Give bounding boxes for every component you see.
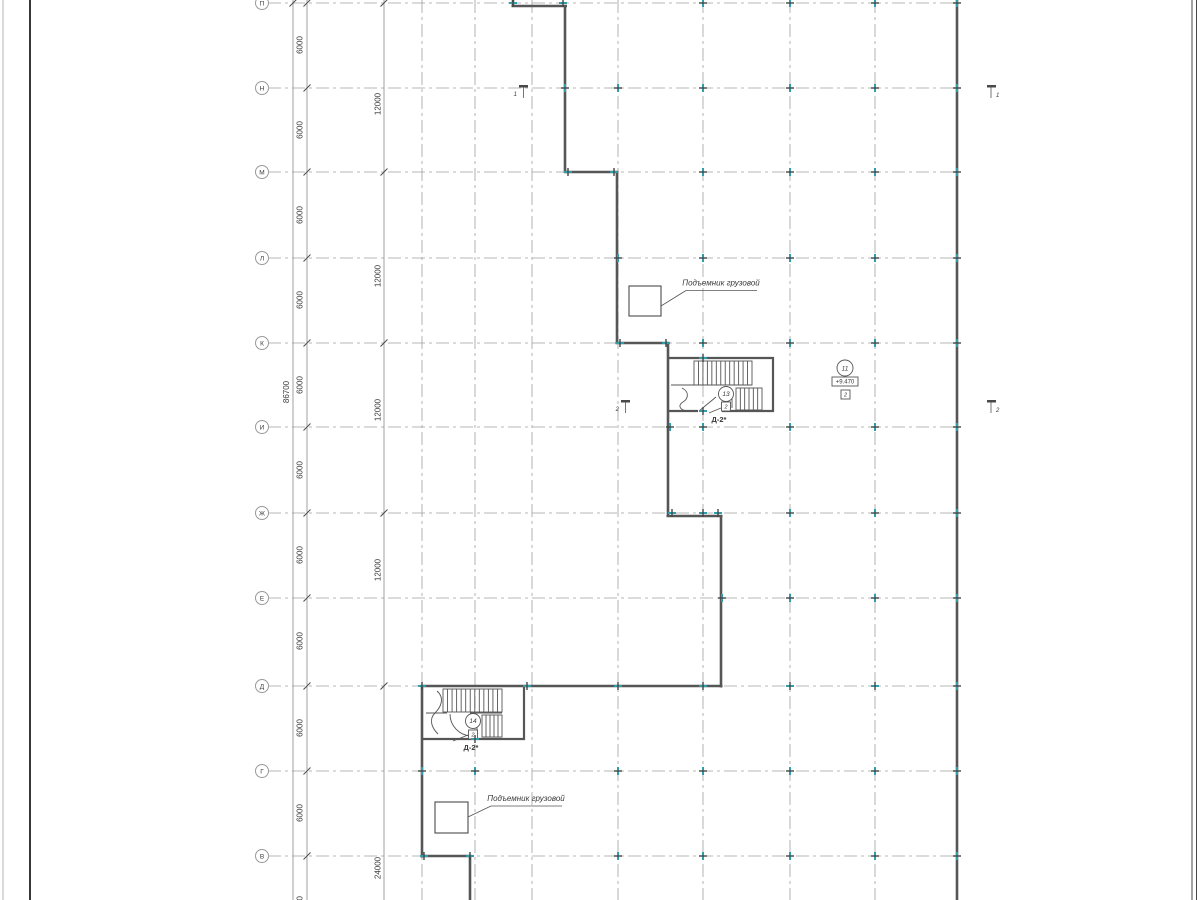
column-tick-cross [469, 852, 470, 860]
column-tick-cross [699, 2, 707, 3]
section-marker-number: 2 [995, 408, 1000, 414]
dimension-text: 6000 [296, 546, 305, 564]
axis-label: Г [260, 768, 264, 775]
column-tick-cross [871, 257, 879, 258]
section-marker-bar [987, 400, 996, 403]
stair-name-label: Д-2* [464, 743, 479, 752]
column-tick-cross [614, 770, 622, 771]
section-marker-number: 1 [996, 93, 999, 99]
dimension-text: 12000 [374, 92, 383, 115]
axis-label: И [260, 424, 265, 431]
column-tick-cross [699, 426, 707, 427]
column-tick-cross [526, 682, 527, 690]
dimension-text: 12000 [374, 264, 383, 287]
column-tick-cross [702, 354, 703, 362]
column-tick-cross [512, 0, 513, 7]
stair-flight [482, 715, 502, 737]
column-tick-cross [699, 342, 707, 343]
plan-svg: ПНМЛКИЖЕДГВ86700600060006000600060006000… [0, 0, 1200, 900]
column-tick-cross [614, 87, 622, 88]
column-tick-cross [786, 342, 794, 343]
stair-leader-line [709, 408, 721, 413]
stair-number: 14 [469, 718, 477, 725]
dimension-text: 12000 [374, 558, 383, 581]
cargo-lift-shaft [629, 286, 661, 316]
axis-label: Л [260, 255, 264, 262]
column-tick-cross [702, 509, 703, 517]
dimension-text: 6000 [296, 36, 305, 54]
column-tick-cross [953, 770, 961, 771]
dimension-text: 6000 [296, 632, 305, 650]
column-tick-cross [702, 407, 703, 415]
column-tick-cross [953, 685, 961, 686]
column-tick-cross [953, 597, 961, 598]
column-tick-cross [699, 770, 707, 771]
axis-label: М [259, 169, 264, 176]
column-tick-cross [418, 770, 426, 771]
dimension-text: 12000 [374, 398, 383, 421]
column-tick-cross [617, 682, 618, 690]
elevation-type-number: 2 [843, 393, 847, 399]
column-tick-cross [871, 2, 879, 3]
column-tick-cross [786, 426, 794, 427]
column-tick-cross [953, 342, 961, 343]
column-tick-cross [874, 682, 875, 690]
column-tick-cross [871, 171, 879, 172]
column-tick-cross [953, 855, 961, 856]
stair-type-number: 2 [470, 733, 474, 739]
dimension-text: 6000 [296, 376, 305, 394]
cargo-lift-label: Подъемник грузовой [487, 794, 565, 803]
column-tick-cross [665, 339, 666, 347]
column-tick-cross [871, 87, 879, 88]
section-marker-bar [621, 400, 630, 403]
column-tick-cross [786, 770, 794, 771]
section-marker-number: 2 [615, 407, 620, 413]
node-number: 11 [842, 365, 849, 372]
dimension-text: 6000 [296, 121, 305, 139]
column-tick-cross [953, 87, 961, 88]
lift-leader-line [661, 291, 686, 307]
axis-label: Н [260, 85, 265, 92]
column-tick-cross [953, 426, 961, 427]
section-marker-bar [987, 85, 996, 88]
column-tick-cross [789, 682, 790, 690]
stair-handrail-curve [431, 691, 441, 734]
column-tick-cross [871, 342, 879, 343]
cargo-lift-label: Подъемник грузовой [682, 279, 760, 288]
column-tick-cross [619, 339, 620, 347]
dimension-text: 6000 [296, 719, 305, 737]
column-tick-cross [786, 2, 794, 3]
column-tick-cross [871, 512, 879, 513]
column-tick-cross [702, 682, 703, 690]
column-tick-cross [953, 171, 961, 172]
column-tick-cross [953, 512, 961, 513]
column-tick-cross [786, 171, 794, 172]
column-tick-cross [423, 852, 424, 860]
column-tick-cross [718, 597, 726, 598]
column-tick-cross [562, 0, 563, 7]
column-tick-cross [953, 2, 961, 3]
dimension-text: 6000 [296, 461, 305, 479]
axis-label: П [260, 0, 265, 7]
column-tick-cross [717, 509, 718, 517]
column-tick-cross [786, 512, 794, 513]
column-tick-cross [561, 87, 569, 88]
section-marker-number: 1 [514, 92, 517, 98]
column-tick-cross [871, 597, 879, 598]
floor-plan-drawing: ПНМЛКИЖЕДГВ86700600060006000600060006000… [0, 0, 1200, 900]
cargo-lift-shaft [435, 802, 468, 833]
column-tick-cross [699, 87, 707, 88]
axis-label: К [260, 340, 264, 347]
column-tick-cross [871, 770, 879, 771]
axis-label: Е [260, 595, 265, 602]
axis-label: В [260, 853, 264, 860]
dimension-text: 6000 [296, 206, 305, 224]
dimension-text: 6000 [296, 896, 305, 900]
column-tick-cross [786, 855, 794, 856]
column-tick-cross [471, 770, 479, 771]
column-tick-cross [666, 426, 674, 427]
column-tick-cross [786, 597, 794, 598]
column-tick-cross [871, 855, 879, 856]
column-tick-cross [421, 682, 422, 690]
column-tick-cross [786, 87, 794, 88]
section-marker-bar [519, 85, 528, 88]
column-tick-cross [614, 855, 622, 856]
column-tick-cross [953, 257, 961, 258]
column-tick-cross [699, 257, 707, 258]
elevation-value: +9.470 [836, 380, 855, 386]
stair-type-number: 2 [723, 405, 727, 411]
dimension-text: 24000 [374, 856, 383, 879]
column-tick-cross [474, 735, 475, 743]
stair-number: 13 [722, 391, 730, 398]
column-tick-cross [699, 855, 707, 856]
lift-leader-line [468, 806, 491, 817]
dimension-text: 86700 [282, 380, 291, 403]
axis-label: Д [260, 683, 265, 690]
column-tick-cross [614, 257, 622, 258]
column-tick-cross [567, 168, 568, 176]
axis-label: Ж [259, 510, 265, 517]
column-tick-cross [699, 171, 707, 172]
column-tick-cross [786, 257, 794, 258]
dimension-text: 6000 [296, 804, 305, 822]
stair-name-label: Д-2* [712, 415, 727, 424]
column-tick-cross [671, 509, 672, 517]
column-tick-cross [613, 168, 614, 176]
column-tick-cross [871, 426, 879, 427]
dimension-text: 6000 [296, 291, 305, 309]
stair-handrail-curve [680, 388, 688, 411]
stair-door-leaf [699, 397, 716, 411]
